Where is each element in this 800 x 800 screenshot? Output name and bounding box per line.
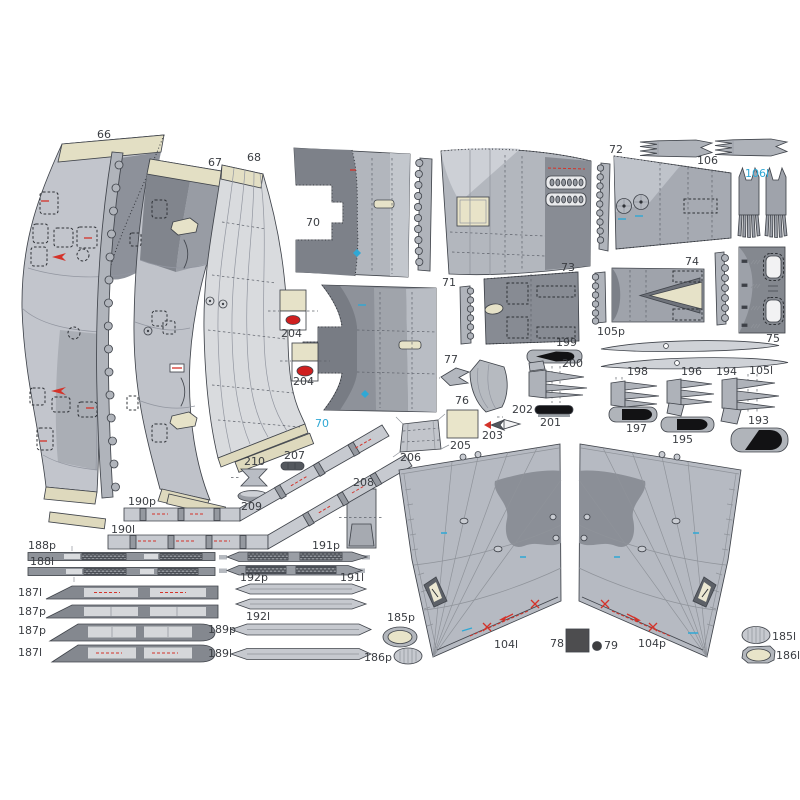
part-label-210: 210 bbox=[244, 455, 265, 468]
part-71 bbox=[441, 148, 591, 275]
part-193 bbox=[731, 428, 788, 452]
part-label-203: 203 bbox=[482, 429, 503, 442]
part-77 bbox=[434, 368, 469, 386]
part-label-209: 209 bbox=[241, 500, 262, 513]
part-label-71: 71 bbox=[442, 276, 456, 289]
part-label-79: 79 bbox=[604, 639, 618, 652]
part-104l-wing bbox=[399, 444, 561, 657]
part-label-75: 75 bbox=[766, 332, 780, 345]
part-205 bbox=[447, 410, 478, 438]
part-label-66: 66 bbox=[97, 128, 111, 141]
serrated-strip-72 bbox=[597, 163, 611, 251]
part-78-square bbox=[566, 629, 589, 652]
serrated-strip-70 bbox=[414, 158, 432, 271]
part-label-205: 205 bbox=[450, 439, 471, 452]
part-label-105l: 105l bbox=[749, 364, 773, 377]
part-187p-1 bbox=[46, 605, 218, 618]
part-label-202: 202 bbox=[512, 403, 533, 416]
part-192p bbox=[236, 584, 366, 594]
part-label-106: 106 bbox=[697, 154, 718, 167]
part-label-196: 196 bbox=[681, 365, 702, 378]
part-label-193: 193 bbox=[748, 414, 769, 427]
part-189l bbox=[231, 649, 371, 660]
part-73 bbox=[484, 272, 579, 344]
part-197 bbox=[609, 407, 657, 422]
part-label-204b: 204 bbox=[293, 375, 314, 388]
part-label-76: 76 bbox=[455, 394, 469, 407]
parts-sheet-canvas: 6667687070717273747576777879104l104p105p… bbox=[0, 0, 800, 800]
part-192l bbox=[236, 599, 366, 609]
part-185l bbox=[742, 627, 770, 644]
part-187l-2 bbox=[52, 645, 215, 662]
part-105p bbox=[601, 341, 779, 352]
part-104p-wing bbox=[579, 444, 741, 657]
model-sheet: 6667687070717273747576777879104l104p105p… bbox=[0, 0, 800, 800]
part-label-189l: 189l bbox=[208, 647, 232, 660]
part-186p bbox=[394, 648, 422, 664]
part-189p bbox=[231, 624, 371, 635]
part-label-189p: 189p bbox=[208, 623, 236, 636]
part-185p bbox=[383, 627, 417, 647]
part-label-199: 199 bbox=[556, 336, 577, 349]
part-label-204a: 204 bbox=[281, 327, 302, 340]
part-label-187p: 187p bbox=[18, 605, 46, 618]
part-75 bbox=[739, 247, 785, 333]
part-76 bbox=[470, 360, 507, 412]
part-label-187p-2: 187p bbox=[18, 624, 46, 637]
part-label-104l: 104l bbox=[494, 638, 518, 651]
part-label-195: 195 bbox=[672, 433, 693, 446]
part-label-191l: 191l bbox=[340, 571, 364, 584]
part-label-70b: 70 bbox=[315, 417, 329, 430]
part-label-192p: 192p bbox=[240, 571, 268, 584]
part-label-190p: 190p bbox=[128, 495, 156, 508]
part-label-187l: 187l bbox=[18, 586, 42, 599]
part-label-74: 74 bbox=[685, 255, 699, 268]
part-label-186l: 186l bbox=[776, 649, 800, 662]
part-70-lower bbox=[303, 285, 436, 412]
part-label-105p: 105p bbox=[597, 325, 625, 338]
part-207 bbox=[281, 462, 304, 470]
part-79-dot bbox=[593, 642, 602, 651]
part-72 bbox=[614, 156, 731, 249]
part-label-188l: 188l bbox=[30, 555, 54, 568]
part-210 bbox=[231, 469, 267, 486]
part-label-72: 72 bbox=[609, 143, 623, 156]
part-195 bbox=[661, 417, 714, 432]
part-label-206: 206 bbox=[400, 451, 421, 464]
part-label-194: 194 bbox=[716, 365, 737, 378]
part-187p-2 bbox=[50, 624, 215, 641]
part-label-190l: 190l bbox=[111, 523, 135, 536]
part-label-185l: 185l bbox=[772, 630, 796, 643]
part-label-73: 73 bbox=[561, 261, 575, 274]
part-196 bbox=[667, 379, 714, 416]
part-188l bbox=[28, 568, 215, 583]
part-label-104p: 104p bbox=[638, 637, 666, 650]
part-label-187l-2: 187l bbox=[18, 646, 42, 659]
serrated-strip-73-right bbox=[592, 272, 606, 324]
part-label-198: 198 bbox=[627, 365, 648, 378]
part-198 bbox=[611, 377, 659, 410]
part-label-207: 207 bbox=[284, 449, 305, 462]
part-191p bbox=[219, 552, 370, 562]
part-label-188p: 188p bbox=[28, 539, 56, 552]
part-label-185p: 185p bbox=[387, 611, 415, 624]
part-label-106l: 106l bbox=[745, 167, 769, 180]
part-label-67: 67 bbox=[208, 156, 222, 169]
part-label-191p: 191p bbox=[312, 539, 340, 552]
part-label-192l: 192l bbox=[246, 610, 270, 623]
part-186l bbox=[742, 646, 775, 663]
part-label-197: 197 bbox=[626, 422, 647, 435]
part-label-77: 77 bbox=[444, 353, 458, 366]
part-74 bbox=[612, 268, 704, 322]
part-label-200: 200 bbox=[562, 357, 583, 370]
part-label-186p: 186p bbox=[364, 651, 392, 664]
serrated-strip-74-75 bbox=[715, 252, 729, 325]
part-187l-1 bbox=[46, 586, 218, 599]
part-label-208: 208 bbox=[353, 476, 374, 489]
part-70-upper bbox=[294, 148, 410, 277]
serrated-strip-73-left bbox=[460, 286, 474, 344]
part-label-70: 70 bbox=[306, 216, 320, 229]
part-label-68: 68 bbox=[247, 151, 261, 164]
part-label-201: 201 bbox=[540, 416, 561, 429]
part-label-78: 78 bbox=[550, 637, 564, 650]
